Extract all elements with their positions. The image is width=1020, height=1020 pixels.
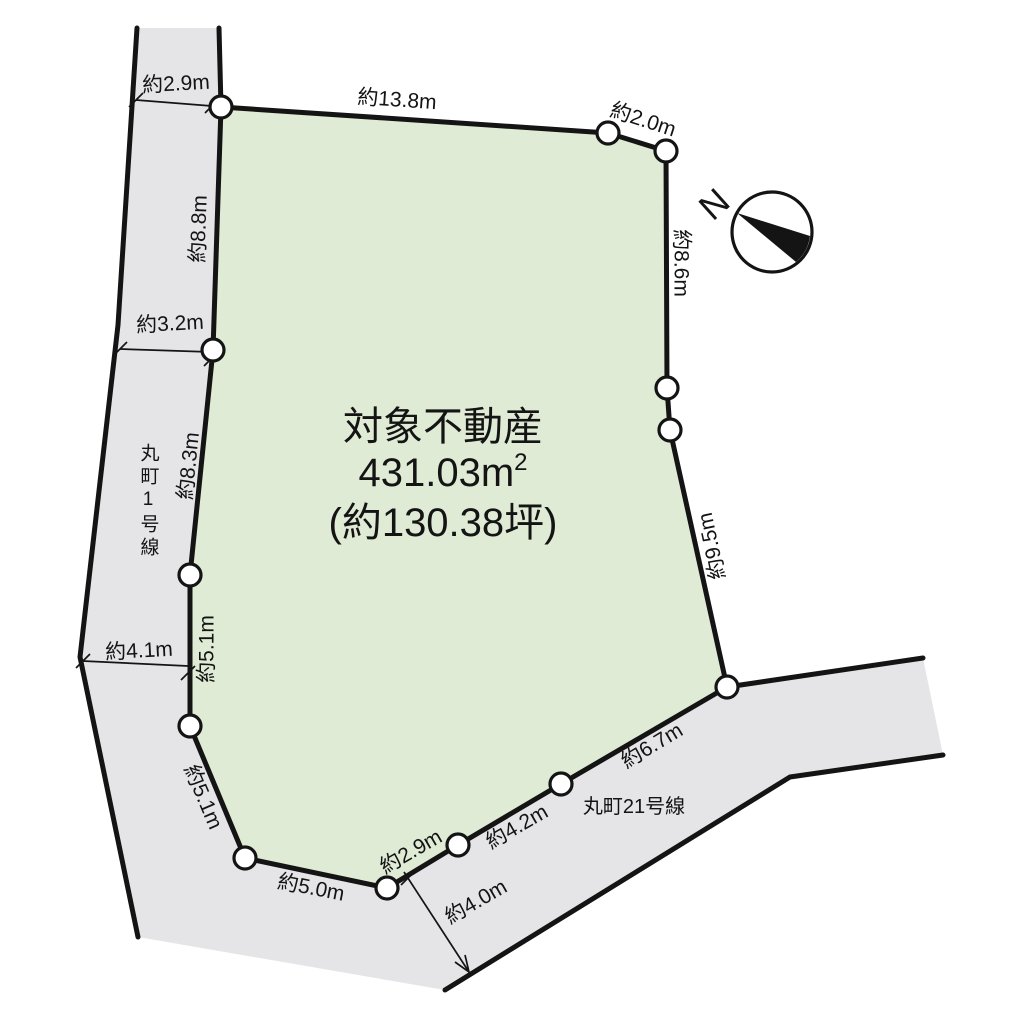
parcel-area-m2: 431.03m2 xyxy=(358,449,527,495)
road1-name-label: 丸町1号線 xyxy=(138,443,160,560)
parcel-area-superscript: 2 xyxy=(514,449,527,476)
vertex-marker xyxy=(376,877,398,899)
vertex-marker xyxy=(234,847,256,869)
parcel-area-value: 431.03m xyxy=(358,451,514,495)
vertex-marker xyxy=(210,96,232,118)
dim-top-road-width-label: 約2.9m xyxy=(142,71,211,98)
vertex-marker xyxy=(179,564,201,586)
parcel-area-tsubo: (約130.38坪) xyxy=(329,501,558,545)
compass: N xyxy=(691,180,812,272)
site-plan-canvas: 約2.9m 約13.8m 約2.0m 約8.8m 約3.2m 約8.3m 約8.… xyxy=(0,0,1020,1020)
dim-right-edge-north-label: 約8.6m xyxy=(670,229,693,297)
vertex-marker xyxy=(597,122,619,144)
north-label: N xyxy=(691,180,738,228)
dim-left-road-width-south-label: 約4.1m xyxy=(105,638,174,665)
vertex-marker xyxy=(179,715,201,737)
parcel-title: 対象不動産 xyxy=(343,405,543,449)
vertex-marker xyxy=(656,377,678,399)
site-plan-diagram: 約2.9m 約13.8m 約2.0m 約8.8m 約3.2m 約8.3m 約8.… xyxy=(0,0,1020,1020)
dim-left-edge-south-label: 約5.1m xyxy=(196,615,219,683)
dim-left-road-width-mid-label: 約3.2m xyxy=(136,311,205,338)
vertex-marker xyxy=(716,676,738,698)
vertex-marker xyxy=(655,140,677,162)
vertex-marker xyxy=(659,419,681,441)
dim-top-edge-label: 約13.8m xyxy=(357,86,438,114)
vertex-marker xyxy=(202,339,224,361)
vertex-marker xyxy=(447,834,469,856)
dim-left-edge-north-label: 約8.8m xyxy=(186,195,211,263)
road21-name-label: 丸町21号線 xyxy=(583,795,685,818)
vertex-marker xyxy=(550,773,572,795)
